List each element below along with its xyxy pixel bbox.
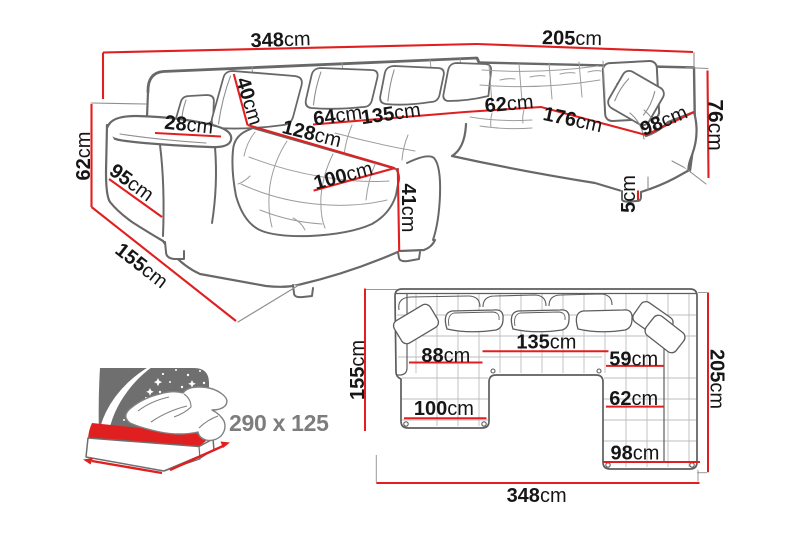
svg-text:348cm: 348cm: [250, 28, 311, 52]
svg-text:41cm: 41cm: [397, 184, 419, 233]
svg-text:290 x 125: 290 x 125: [229, 410, 329, 436]
svg-text:76cm: 76cm: [703, 99, 726, 150]
svg-text:98cm: 98cm: [611, 443, 660, 465]
svg-text:62cm: 62cm: [609, 388, 658, 410]
svg-text:59cm: 59cm: [609, 349, 658, 371]
svg-text:100cm: 100cm: [414, 398, 474, 420]
svg-text:155cm: 155cm: [347, 340, 369, 400]
svg-text:348cm: 348cm: [507, 485, 567, 507]
svg-text:62cm: 62cm: [484, 91, 535, 117]
svg-text:135cm: 135cm: [516, 332, 576, 354]
svg-text:205cm: 205cm: [542, 27, 602, 50]
svg-text:62cm: 62cm: [73, 132, 95, 181]
svg-text:205cm: 205cm: [705, 349, 727, 409]
svg-text:88cm: 88cm: [421, 345, 470, 367]
svg-text:5cm: 5cm: [618, 175, 640, 213]
